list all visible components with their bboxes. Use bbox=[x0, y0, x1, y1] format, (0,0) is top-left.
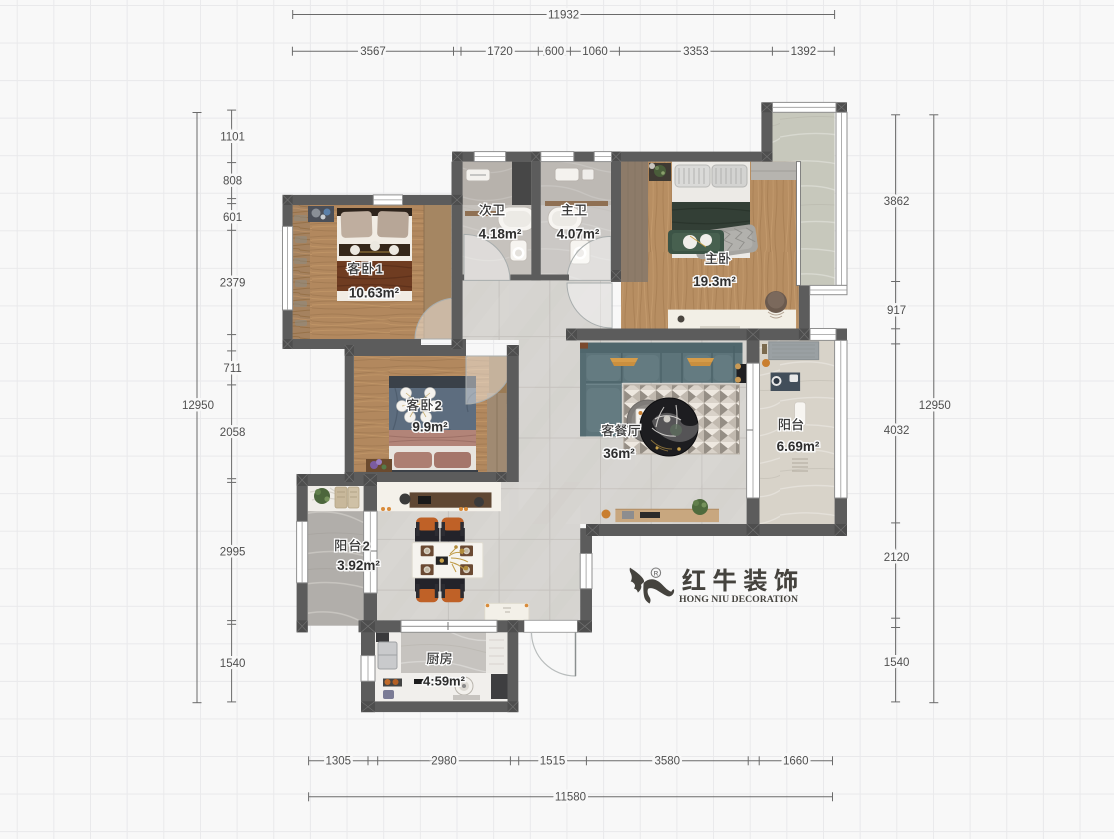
svg-text:9.9m²: 9.9m² bbox=[412, 420, 448, 435]
svg-text:1305: 1305 bbox=[326, 756, 352, 768]
svg-text:2: 2 bbox=[435, 398, 442, 413]
svg-text:3580: 3580 bbox=[655, 756, 681, 768]
svg-text:36m²: 36m² bbox=[603, 446, 635, 461]
svg-text:2995: 2995 bbox=[220, 546, 246, 558]
svg-text:3.92m²: 3.92m² bbox=[337, 558, 380, 573]
svg-text:19.3m²: 19.3m² bbox=[693, 274, 736, 289]
svg-text:1392: 1392 bbox=[791, 46, 817, 58]
svg-text:1540: 1540 bbox=[884, 657, 910, 669]
svg-text:12950: 12950 bbox=[182, 400, 214, 412]
svg-text:2058: 2058 bbox=[220, 427, 246, 439]
svg-text:11580: 11580 bbox=[555, 792, 586, 804]
svg-text:917: 917 bbox=[887, 305, 906, 317]
svg-text:4.07m²: 4.07m² bbox=[557, 227, 600, 242]
svg-text:1: 1 bbox=[376, 261, 383, 276]
svg-text:12950: 12950 bbox=[919, 400, 951, 412]
svg-text:2: 2 bbox=[363, 538, 370, 553]
svg-text:2379: 2379 bbox=[220, 277, 246, 289]
svg-text:R: R bbox=[654, 571, 659, 578]
svg-text:1720: 1720 bbox=[487, 46, 513, 58]
svg-text:601: 601 bbox=[223, 212, 242, 224]
svg-text:1060: 1060 bbox=[582, 46, 608, 58]
svg-text:600: 600 bbox=[545, 46, 564, 58]
svg-text:HONG NIU DECORATION: HONG NIU DECORATION bbox=[679, 594, 798, 605]
svg-text:1540: 1540 bbox=[220, 658, 246, 670]
svg-text:1660: 1660 bbox=[783, 756, 809, 768]
svg-text:10.63m²: 10.63m² bbox=[349, 286, 400, 301]
svg-text:3353: 3353 bbox=[683, 46, 709, 58]
svg-text:1101: 1101 bbox=[220, 131, 245, 143]
svg-text:808: 808 bbox=[223, 175, 242, 187]
svg-text:6.69m²: 6.69m² bbox=[777, 439, 820, 454]
svg-text:3862: 3862 bbox=[884, 196, 910, 208]
svg-text:1515: 1515 bbox=[540, 756, 566, 768]
svg-text:4:59m²: 4:59m² bbox=[423, 674, 466, 689]
svg-text:2120: 2120 bbox=[884, 552, 910, 564]
svg-text:2980: 2980 bbox=[431, 756, 457, 768]
svg-text:11932: 11932 bbox=[548, 9, 579, 21]
svg-text:4.18m²: 4.18m² bbox=[479, 227, 522, 242]
svg-text:4032: 4032 bbox=[884, 425, 910, 437]
svg-text:3567: 3567 bbox=[360, 46, 386, 58]
svg-text:711: 711 bbox=[223, 363, 241, 375]
